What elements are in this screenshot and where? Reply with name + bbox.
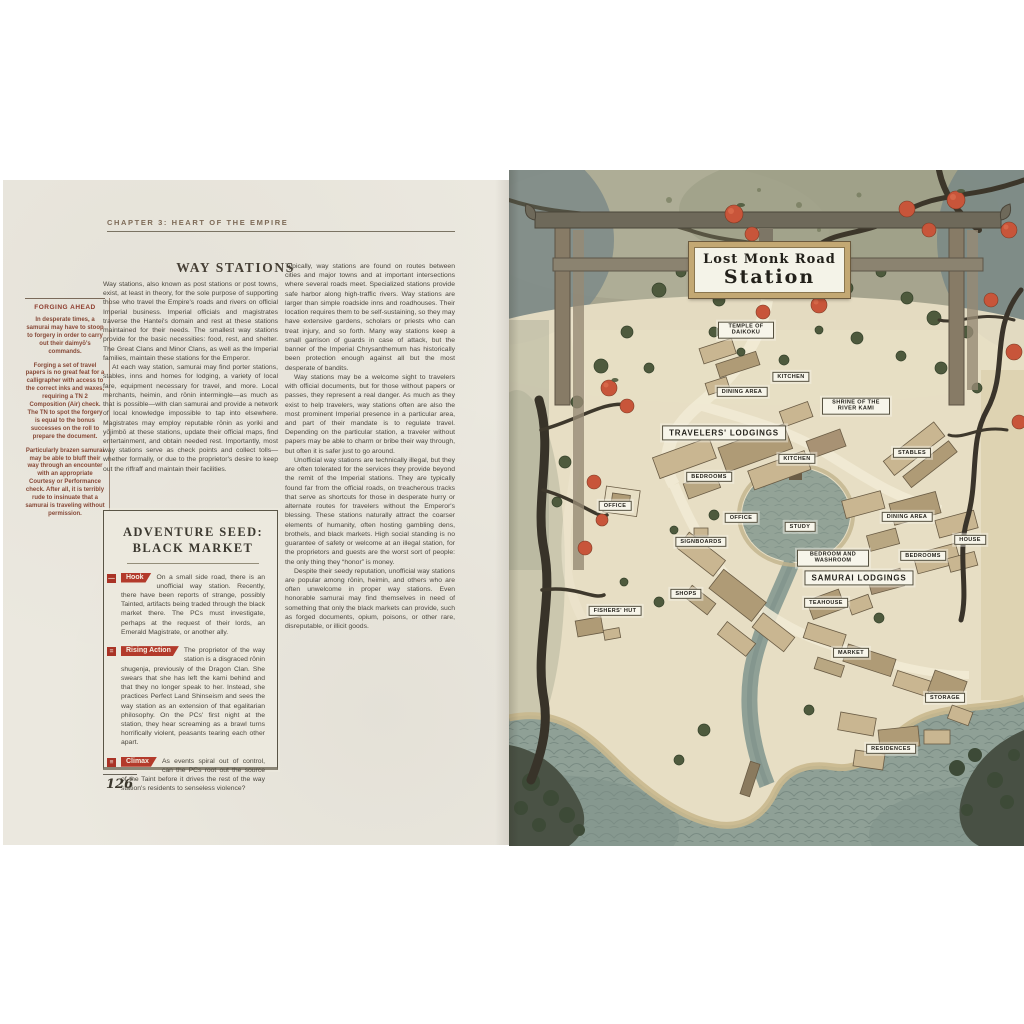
body-paragraph: Typically, way stations are found on rou… — [285, 262, 455, 373]
chapter-header-rule — [107, 231, 455, 232]
seed-ribbon-label: Climax — [121, 757, 157, 767]
sidebar-note: FORGING AHEAD In desperate times, a samu… — [25, 298, 110, 525]
text-column-1: Way stations, also known as post station… — [103, 280, 278, 474]
map-label: FISHERS' HUT — [589, 606, 642, 616]
sidebar-title: FORGING AHEAD — [25, 298, 105, 311]
map-label: TEAHOUSE — [804, 598, 848, 608]
map-label: STABLES — [893, 448, 931, 458]
map-label: BEDROOMS — [686, 472, 732, 482]
map-label: KITCHEN — [778, 454, 815, 464]
sidebar-paragraph: In desperate times, a samurai may have t… — [25, 317, 105, 357]
seed-ribbon-label: Rising Action — [121, 646, 179, 656]
adventure-seed-section: = Rising Action The proprietor of the wa… — [121, 646, 265, 748]
adventure-seed-box: ADVENTURE SEED: BLACK MARKET — Hook On a… — [103, 510, 278, 770]
map-label: SHOPS — [670, 589, 701, 599]
body-paragraph: Way stations may be a welcome sight to t… — [285, 373, 455, 456]
map-label: SIGNBOARDS — [675, 537, 726, 547]
chapter-header: CHAPTER 3: HEART OF THE EMPIRE — [107, 218, 288, 227]
map-label: HOUSE — [954, 535, 986, 545]
map-label: SAMURAI LODGINGS — [804, 570, 913, 585]
adventure-seed-title-line2: BLACK MARKET — [121, 540, 265, 556]
map-label: RESIDENCES — [866, 744, 916, 754]
map-label: TRAVELERS' LODGINGS — [662, 425, 786, 440]
map-label: KITCHEN — [772, 372, 809, 382]
adventure-seed-sections: — Hook On a small side road, there is an… — [121, 573, 265, 794]
map-label: DINING AREA — [882, 512, 933, 522]
sidebar-paragraph: Particularly brazen samurai may be able … — [25, 448, 105, 519]
map-label: SHRINE OF THE RIVER KAMI — [822, 398, 890, 415]
adventure-seed-rule — [127, 563, 259, 564]
map-label: STUDY — [785, 522, 816, 532]
adventure-seed-section: — Hook On a small side road, there is an… — [121, 573, 265, 638]
seed-number-icon: — — [107, 574, 116, 583]
adventure-seed-section: ≡ Climax As events spiral out of control… — [121, 757, 265, 794]
body-paragraph: Despite their seedy reputation, unoffici… — [285, 567, 455, 632]
map-label: TEMPLE OF DAIKOKU — [718, 322, 774, 339]
left-page: CHAPTER 3: HEART OF THE EMPIRE FORGING A… — [3, 180, 509, 845]
adventure-seed-title: ADVENTURE SEED: BLACK MARKET — [121, 524, 265, 557]
seed-number-icon: ≡ — [107, 758, 116, 767]
sidebar-paragraph: Forging a set of travel papers is no gre… — [25, 363, 105, 442]
text-column-2: Typically, way stations are found on rou… — [285, 262, 455, 631]
map-label: STORAGE — [925, 693, 965, 703]
station-sign: Lost Monk Road Station — [689, 242, 850, 298]
seed-ribbon-label: Hook — [121, 573, 152, 583]
body-paragraph: At each way station, samurai may find po… — [103, 363, 278, 474]
map-label: OFFICE — [599, 501, 632, 511]
seed-text: The proprietor of the way station is a d… — [121, 647, 265, 746]
map-label: BEDROOM AND WASHROOM — [797, 550, 869, 567]
body-paragraph: Unofficial way stations are technically … — [285, 456, 455, 567]
map-page: Lost Monk Road Station TEMPLE OF DAIKOKU… — [509, 170, 1024, 846]
map-label: MARKET — [833, 648, 869, 658]
map-label: BEDROOMS — [900, 551, 946, 561]
seed-text: On a small side road, there is an unoffi… — [121, 574, 265, 636]
body-paragraph: Way stations, also known as post station… — [103, 280, 278, 363]
sidebar-paragraphs: In desperate times, a samurai may have t… — [25, 317, 105, 519]
map-label: OFFICE — [725, 513, 758, 523]
map-label: DINING AREA — [717, 387, 768, 397]
page-number: 126 — [106, 777, 133, 792]
book-spread-photo: CHAPTER 3: HEART OF THE EMPIRE FORGING A… — [0, 0, 1024, 1024]
sign-title-line1: Lost Monk Road — [703, 252, 836, 267]
page-number-rule — [103, 774, 137, 775]
adventure-seed-title-line1: ADVENTURE SEED: — [121, 524, 265, 540]
sign-title-line2: Station — [724, 266, 815, 288]
seed-number-icon: = — [107, 647, 116, 656]
